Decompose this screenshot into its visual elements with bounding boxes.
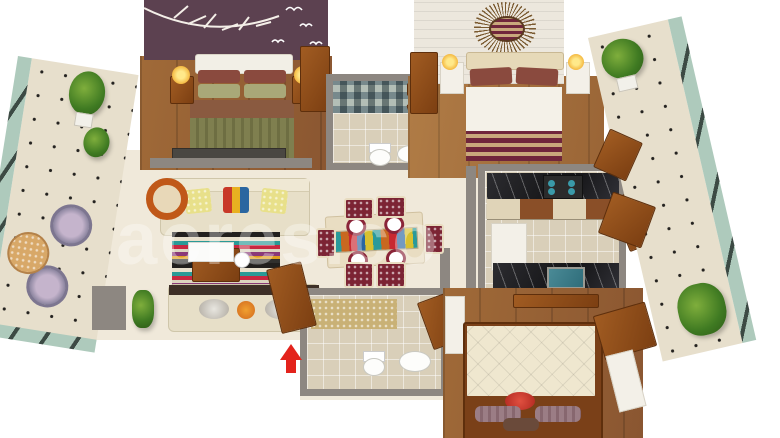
- pillow: [244, 70, 286, 83]
- cushion-multicolor: [223, 187, 249, 213]
- entry-arrow-icon: [280, 344, 302, 360]
- wardrobe: [410, 52, 438, 114]
- burner: [568, 180, 575, 187]
- cushion-yellow: [184, 188, 212, 215]
- wall-segment: [440, 248, 450, 292]
- toilet: [363, 358, 385, 376]
- burner: [548, 180, 555, 187]
- table-runner: [333, 228, 418, 252]
- sink: [399, 351, 431, 372]
- dining-chair: [376, 262, 406, 288]
- pillow: [516, 67, 559, 86]
- table-lamp: [172, 66, 190, 84]
- round-lounge-chair: [146, 178, 188, 220]
- gas-stove: [543, 175, 583, 199]
- pillow: [244, 84, 286, 98]
- kitchen-base-cabinets: [487, 199, 619, 220]
- bathroom-2-accent-wall: [311, 299, 397, 329]
- dresser: [445, 296, 465, 354]
- pillow: [198, 70, 240, 83]
- toilet: [369, 149, 391, 166]
- bedroom-1: [140, 0, 332, 170]
- dining-chair: [344, 198, 374, 220]
- dining-chair: [344, 262, 374, 288]
- dining-chair: [316, 228, 336, 258]
- bed-sheet: [466, 87, 562, 131]
- kitchen-sink: [547, 267, 585, 289]
- wall-segment: [92, 286, 126, 330]
- plant-pot: [74, 112, 94, 129]
- potted-plant: [132, 290, 154, 328]
- decor-plate: [234, 252, 250, 268]
- wall-segment: [466, 166, 476, 294]
- table-lamp: [568, 54, 584, 70]
- bed-quilt: [467, 326, 595, 396]
- coffee-table-tray: [188, 242, 234, 262]
- dining-table: [325, 211, 426, 268]
- bed-striped-blanket: [466, 131, 562, 161]
- cushion-yellow: [260, 188, 288, 215]
- cushion-gray: [199, 299, 229, 319]
- pillow: [198, 84, 240, 98]
- bed-headboard: [466, 52, 564, 70]
- pillow-brown: [503, 418, 539, 431]
- sunburst-center: [489, 16, 525, 42]
- pillow-mauve: [535, 406, 581, 422]
- burner: [548, 188, 555, 195]
- bathroom-2: [300, 288, 448, 396]
- entry-arrow-stem: [286, 360, 296, 373]
- dining-chair: [424, 224, 444, 254]
- floor-plan-render: acres.co: [0, 0, 780, 438]
- burner: [568, 188, 575, 195]
- bedroom-2: [408, 0, 604, 178]
- table-lamp: [442, 54, 458, 70]
- wall-shelf: [513, 294, 599, 308]
- bed-blanket-fold: [190, 100, 294, 118]
- cushion-orange: [237, 301, 255, 319]
- pillow: [470, 67, 513, 86]
- dining-chair: [376, 196, 406, 218]
- wall-segment: [150, 158, 312, 168]
